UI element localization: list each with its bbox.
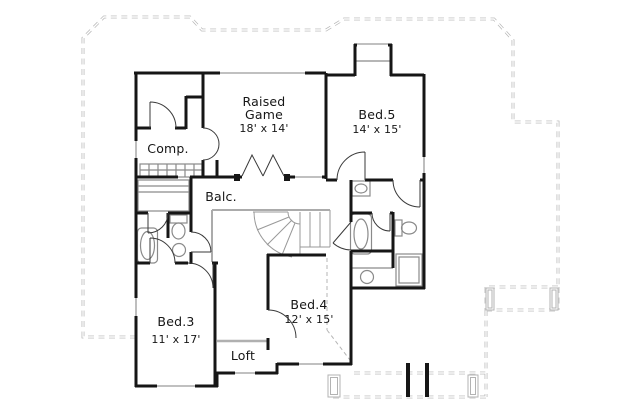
vanity-sink-icon [351,268,393,284]
curved-staircase [238,210,330,257]
floor-plan-canvas: Raised Game 18' x 14' Bed.5 14' x 15' Co… [0,0,620,415]
room-label-loft: Loft [231,348,255,363]
room-label-bed3: Bed.3 [157,314,194,329]
room-labels: Raised Game 18' x 14' Bed.5 14' x 15' Co… [147,94,401,363]
porch-posts [328,288,558,397]
left-closet-shelves [138,180,189,211]
room-label-bed5: Bed.5 [358,107,395,122]
floor-plan-drawing: Raised Game 18' x 14' Bed.5 14' x 15' Co… [0,0,620,415]
ceiling-break-lines [327,258,350,360]
right-sink-icon [352,181,370,196]
left-bathtub-icon [138,228,158,263]
right-closet-shelves [396,254,422,286]
room-label-raised-game-line2: Game [245,107,283,122]
french-doors [242,155,284,176]
room-dims-raised-game: 18' x 14' [239,122,288,135]
right-bathtub-icon [351,214,372,254]
chimney [408,363,427,397]
room-dims-bed4: 12' x 15' [284,313,333,326]
room-label-balc: Balc. [205,189,237,204]
door-swing-arcs [148,102,420,338]
left-toilet-icon [170,215,187,239]
left-sink-icon [173,244,186,257]
room-label-bed4: Bed.4 [290,297,327,312]
right-toilet-icon [395,220,417,236]
room-dims-bed5: 14' x 15' [352,123,401,136]
room-label-comp: Comp. [147,141,188,156]
built-in-desk [140,164,202,177]
room-dims-bed3: 11' x 17' [151,333,200,346]
